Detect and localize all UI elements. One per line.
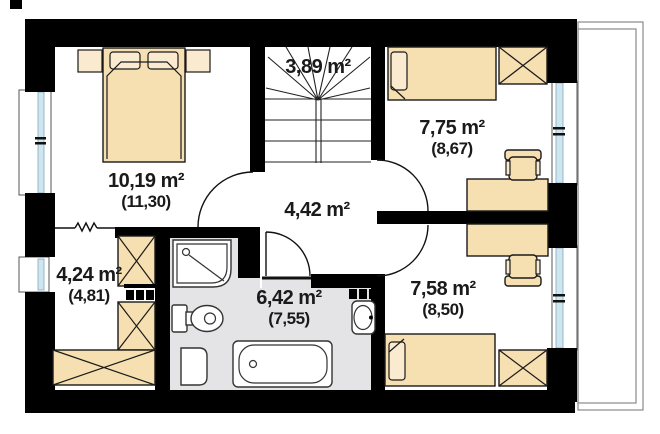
wall-segment <box>547 183 577 248</box>
desk <box>467 224 548 256</box>
wardrobe <box>53 350 155 385</box>
balcony <box>578 22 643 410</box>
room-label-bedroom-1: 10,19 m² (11,30) <box>108 170 184 211</box>
room-area: 4,42 m² <box>284 199 349 221</box>
washing-machine <box>181 348 207 385</box>
door-bedroom-2 <box>377 160 428 211</box>
room-area-ceiling: (8,50) <box>410 300 475 319</box>
wall-segment <box>25 19 55 92</box>
wardrobe <box>118 236 155 286</box>
wardrobe <box>499 47 547 84</box>
wardrobe <box>118 302 155 350</box>
radiator <box>124 284 156 300</box>
pillow <box>389 342 405 380</box>
room-label-wardrobe-room: 4,24 m² (4,81) <box>56 264 121 305</box>
door-bedroom-1 <box>198 172 253 227</box>
wall-segment <box>377 211 549 224</box>
wall-segment <box>238 238 260 278</box>
window <box>552 246 577 350</box>
window <box>19 257 49 292</box>
knee-wall-break <box>55 223 115 231</box>
wall-segment <box>25 292 55 402</box>
door-bathroom <box>266 232 310 276</box>
room-area: 7,58 m² <box>410 278 475 300</box>
room-label-staircase: 3,89 m² <box>285 56 350 78</box>
room-area: 3,89 m² <box>285 56 350 78</box>
wall-segment <box>371 47 385 160</box>
room-label-bedroom-2: 7,75 m² (8,67) <box>419 117 484 158</box>
chair <box>505 255 541 286</box>
room-label-hall: 4,42 m² <box>284 199 349 221</box>
wardrobe <box>499 350 547 386</box>
wall-segment <box>547 19 577 83</box>
room-area: 6,42 m² <box>256 287 321 309</box>
room-label-bathroom: 6,42 m² (7,55) <box>256 287 321 328</box>
pillow <box>391 52 407 90</box>
bedroom-1-furniture <box>78 48 210 162</box>
bathtub <box>233 341 332 387</box>
wall-segment <box>25 193 55 257</box>
door-bedroom-3 <box>377 225 428 276</box>
window <box>552 81 577 185</box>
room-area: 4,24 m² <box>56 264 121 286</box>
wall-tick <box>10 0 22 9</box>
room-area-ceiling: (8,67) <box>419 139 484 158</box>
wall-segment <box>25 19 575 47</box>
pillow <box>110 52 140 69</box>
room-area: 10,19 m² <box>108 170 184 192</box>
wall-segment <box>250 47 265 172</box>
wall-segment <box>547 348 577 402</box>
room-area-ceiling: (11,30) <box>108 192 184 211</box>
sink <box>352 301 375 334</box>
shower <box>173 240 231 287</box>
floor-plan: 10,19 m² (11,30) 3,89 m² 7,75 m² (8,67) … <box>0 0 660 434</box>
wall-segment <box>25 390 575 413</box>
radiator <box>349 289 377 299</box>
chair <box>505 150 541 180</box>
wall-segment <box>311 274 385 288</box>
wall-segment <box>155 238 170 390</box>
desk <box>467 179 548 211</box>
toilet <box>172 305 223 332</box>
nightstand <box>78 50 102 72</box>
room-area: 7,75 m² <box>419 117 484 139</box>
wardrobe-room-furniture <box>53 236 156 385</box>
window <box>19 90 51 195</box>
room-area-ceiling: (7,55) <box>256 309 321 328</box>
nightstand <box>186 50 210 72</box>
room-area-ceiling: (4,81) <box>56 286 121 305</box>
pillow <box>148 52 178 69</box>
room-label-bedroom-3: 7,58 m² (8,50) <box>410 278 475 319</box>
